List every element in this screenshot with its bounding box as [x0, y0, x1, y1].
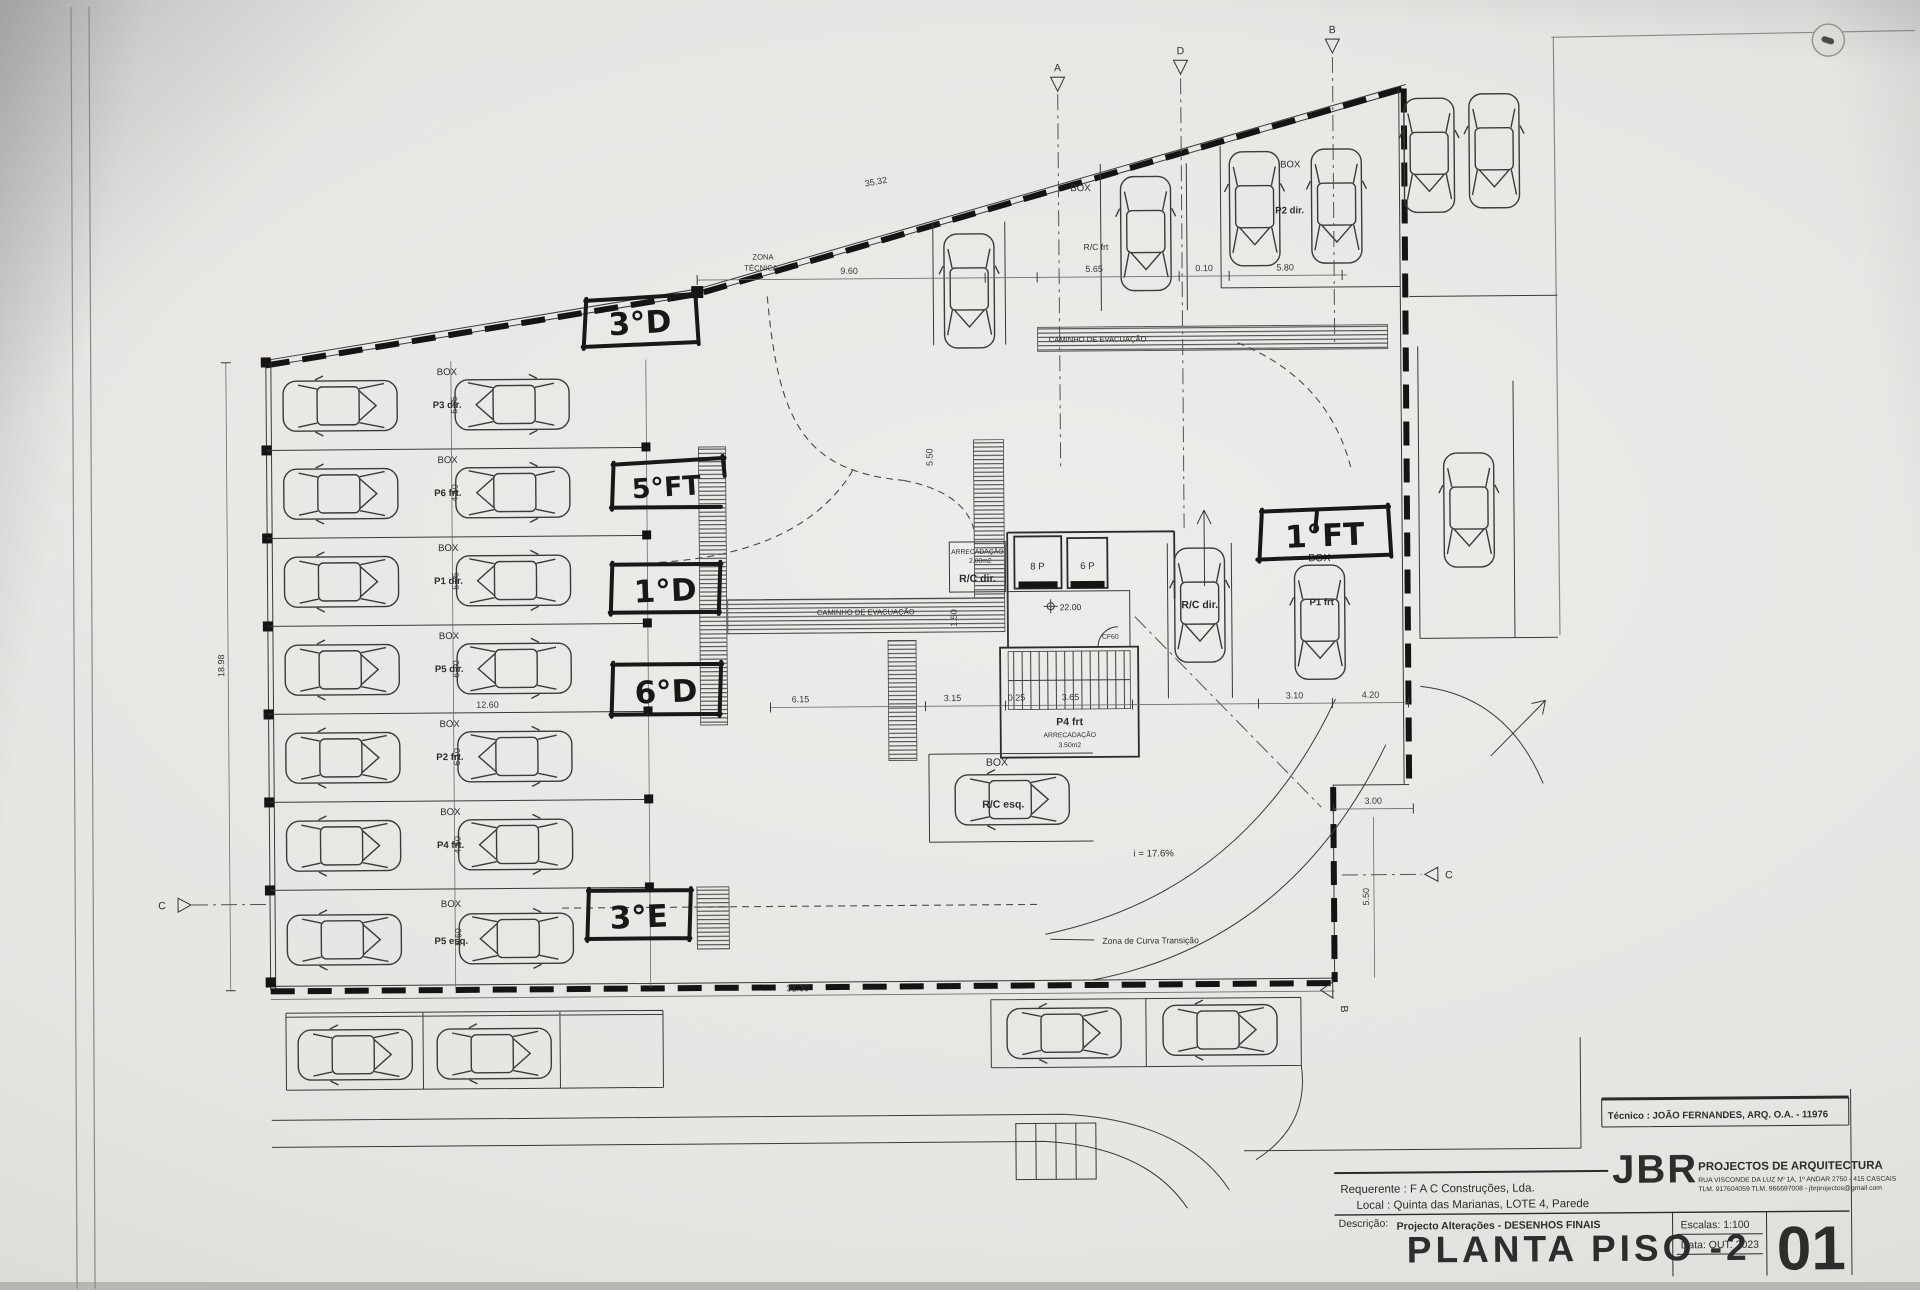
unit-rc-frt-label: R/C frt: [1083, 242, 1109, 252]
box-label: BOX: [986, 757, 1008, 769]
box-label: BOX: [1070, 183, 1091, 194]
stall-depth-dim: 5.65: [449, 396, 459, 414]
bottom-parking-street: [271, 997, 1304, 1215]
box-rc-esq: BOX R/C esq.: [929, 753, 1094, 842]
stall-depth-dim: 6.10: [451, 660, 461, 678]
storage-label: ARRECADAÇÃO: [951, 547, 1004, 556]
handwritten-6d: 6°D: [634, 673, 698, 712]
zona-tecnica-label-1: ZONA: [752, 252, 774, 261]
zona-tecnica-label-2: TÉCNICA: [744, 263, 778, 272]
caminho-evacuacao-label: CAMINHO DE EVACUAÇÃO: [817, 607, 915, 617]
dim-5-50-mid: 5.50: [924, 448, 934, 466]
handwritten-5ft: 5°FT: [631, 470, 702, 505]
descricao-label: Descrição:: [1339, 1218, 1389, 1230]
sheet-number: 01: [1777, 1214, 1847, 1284]
unit-p1-frt-label: P1 frt: [1309, 597, 1334, 608]
box-label: BOX: [1280, 159, 1301, 170]
section-b-bottom-label: B: [1338, 1005, 1350, 1012]
stair-unit-label: P4 frt: [1056, 716, 1083, 728]
firm-address: RUA VISCONDE DA LUZ Nº 1A, 1º ANDAR 2750…: [1698, 1176, 1897, 1185]
dim-1-50: 1.50: [949, 609, 959, 627]
handwritten-1d: 1°D: [633, 572, 697, 611]
dim-12-60: 12.60: [476, 700, 499, 710]
unit-rc-esq-label: R/C esq.: [982, 798, 1024, 810]
dim-0-25: 0.25: [1008, 692, 1026, 702]
elevator-8p-label: 8 P: [1030, 561, 1044, 572]
dim-6-15: 6.15: [792, 694, 810, 704]
dim-3-15: 3.15: [944, 693, 962, 703]
dim-31-30: 31.30: [786, 983, 809, 993]
dim-5-50-right: 5.50: [1361, 888, 1371, 906]
stall-box-label: BOX: [437, 455, 458, 466]
stall-box-label: BOX: [441, 899, 462, 910]
handwritten-1ft: 1°FT: [1284, 516, 1365, 555]
section-markers: A D B B C C: [151, 23, 1454, 1022]
local-line: Local : Quinta das Marianas, LOTE 4, Par…: [1356, 1198, 1589, 1212]
date-value: Data: OUT. 2023: [1681, 1239, 1759, 1252]
title-block: Técnico : JOÃO FERNANDES, ARQ. O.A. - 11…: [1334, 1097, 1898, 1287]
section-d-label: D: [1177, 45, 1185, 57]
garage-boundary: [259, 84, 1413, 991]
section-c-left-label: C: [158, 900, 166, 912]
firm-name: PROJECTOS DE ARQUITECTURA: [1698, 1160, 1883, 1173]
handwritten-3e: 3°E: [609, 898, 669, 936]
fire-door-cf60-label: CF60: [1102, 634, 1119, 641]
stall-depth-dim: 6.10: [452, 748, 462, 766]
stall-box-label: BOX: [440, 807, 461, 818]
wall-hatch-band: [697, 887, 729, 949]
ramp-slope-label: i = 17.6%: [1133, 848, 1174, 859]
dim-9-60: 9.60: [840, 266, 858, 276]
tecnico-line: Técnico : JOÃO FERNANDES, ARQ. O.A. - 11…: [1608, 1109, 1828, 1122]
stall-box-label: BOX: [439, 719, 460, 730]
stair-storage-area: 3.50m2: [1058, 742, 1081, 749]
handwritten-3d: 3°D: [608, 304, 673, 344]
stall-box-label: BOX: [438, 543, 459, 554]
dim-3-65: 3.65: [1062, 692, 1080, 702]
wall-hatch-band: [698, 447, 727, 725]
stair-storage-label: ARRECADAÇÃO: [1043, 730, 1096, 739]
unit-rc-dir-label: R/C dir.: [1181, 599, 1218, 611]
unit-p2-dir-label: P2 dir.: [1275, 205, 1304, 216]
scale-value: Escalas: 1:100: [1681, 1219, 1750, 1232]
stall-depth-dim: 5.05: [450, 572, 460, 590]
stall-box-label: BOX: [439, 631, 460, 642]
stall-depth-dim: 5.60: [453, 928, 463, 946]
dim-35-32: 35.32: [864, 175, 888, 189]
dim-5-80: 5.80: [1276, 262, 1294, 272]
dim-0-10: 0.10: [1195, 263, 1213, 273]
section-c-right-label: C: [1445, 869, 1453, 881]
storage-area-value: 2.00m2: [969, 558, 992, 565]
transition-curve-label: Zona de Curva Transição: [1102, 935, 1199, 946]
caminho-evacuacao-label: CAMINHO DE EVACUAÇÃO: [1049, 335, 1147, 345]
slope-annotations: i = 17.6% Zona de Curva Transição: [1050, 848, 1199, 946]
level-marker-value: 22.00: [1060, 602, 1082, 612]
dim-5-65: 5.65: [1085, 264, 1103, 274]
stall-depth-dim: 4.50: [453, 836, 463, 854]
unit-rc-dir-label: R/C dir.: [959, 573, 996, 585]
section-b-label: B: [1329, 24, 1336, 36]
dim-3-10: 3.10: [1286, 690, 1304, 700]
dim-4-20: 4.20: [1362, 690, 1380, 700]
stall-depth-dim: 4.50: [450, 484, 460, 502]
outer-dims: 3.00 5.50 31.30 18.98: [214, 353, 1415, 999]
dim-18-98: 18.98: [216, 654, 226, 677]
top-parking: BOX R/C frt BOX P2 dir.: [932, 93, 1558, 348]
stall-box-label: BOX: [437, 367, 458, 378]
section-a-label: A: [1054, 62, 1061, 74]
elevator-6p-label: 6 P: [1080, 561, 1094, 572]
floor-plan-drawing: BOX P3 dir. BOX P6 frt. BOX P1 dir. BOX …: [0, 0, 1920, 1290]
firm-logo-text: JBR: [1612, 1147, 1698, 1192]
requerente-line: Requerente : F A C Construções, Lda.: [1340, 1183, 1534, 1197]
firm-contacts: TLM. 917604059 TLM. 966697008 - jbrproje…: [1698, 1185, 1882, 1193]
dim-3-00: 3.00: [1364, 796, 1382, 806]
